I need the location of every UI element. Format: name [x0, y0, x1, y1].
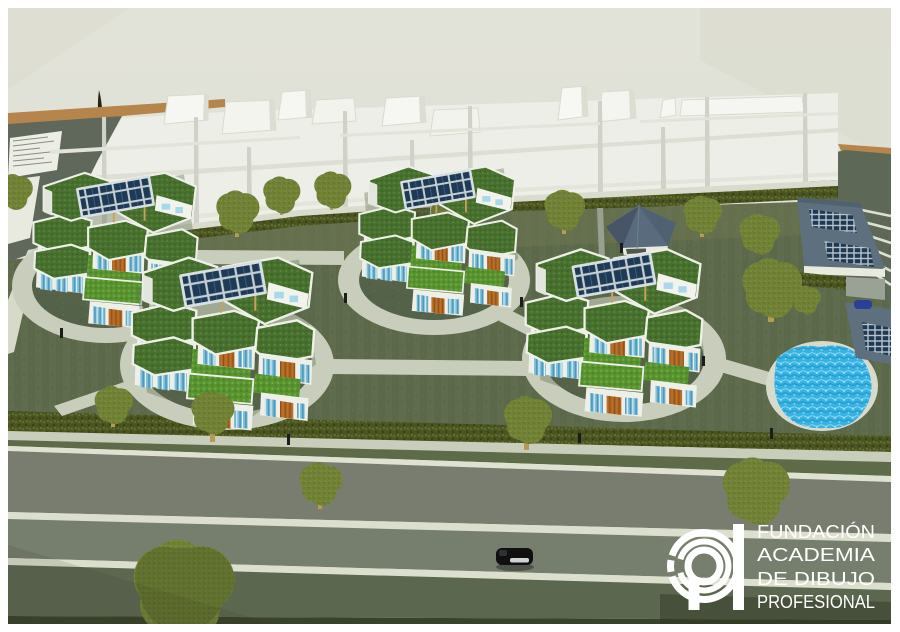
svg-text:FUNDACIÓN: FUNDACIÓN — [757, 521, 875, 542]
svg-text:PROFESIONAL: PROFESIONAL — [757, 592, 875, 612]
svg-text:DE DIBUJO: DE DIBUJO — [757, 569, 875, 589]
svg-text:ACADEMIA: ACADEMIA — [757, 545, 875, 565]
